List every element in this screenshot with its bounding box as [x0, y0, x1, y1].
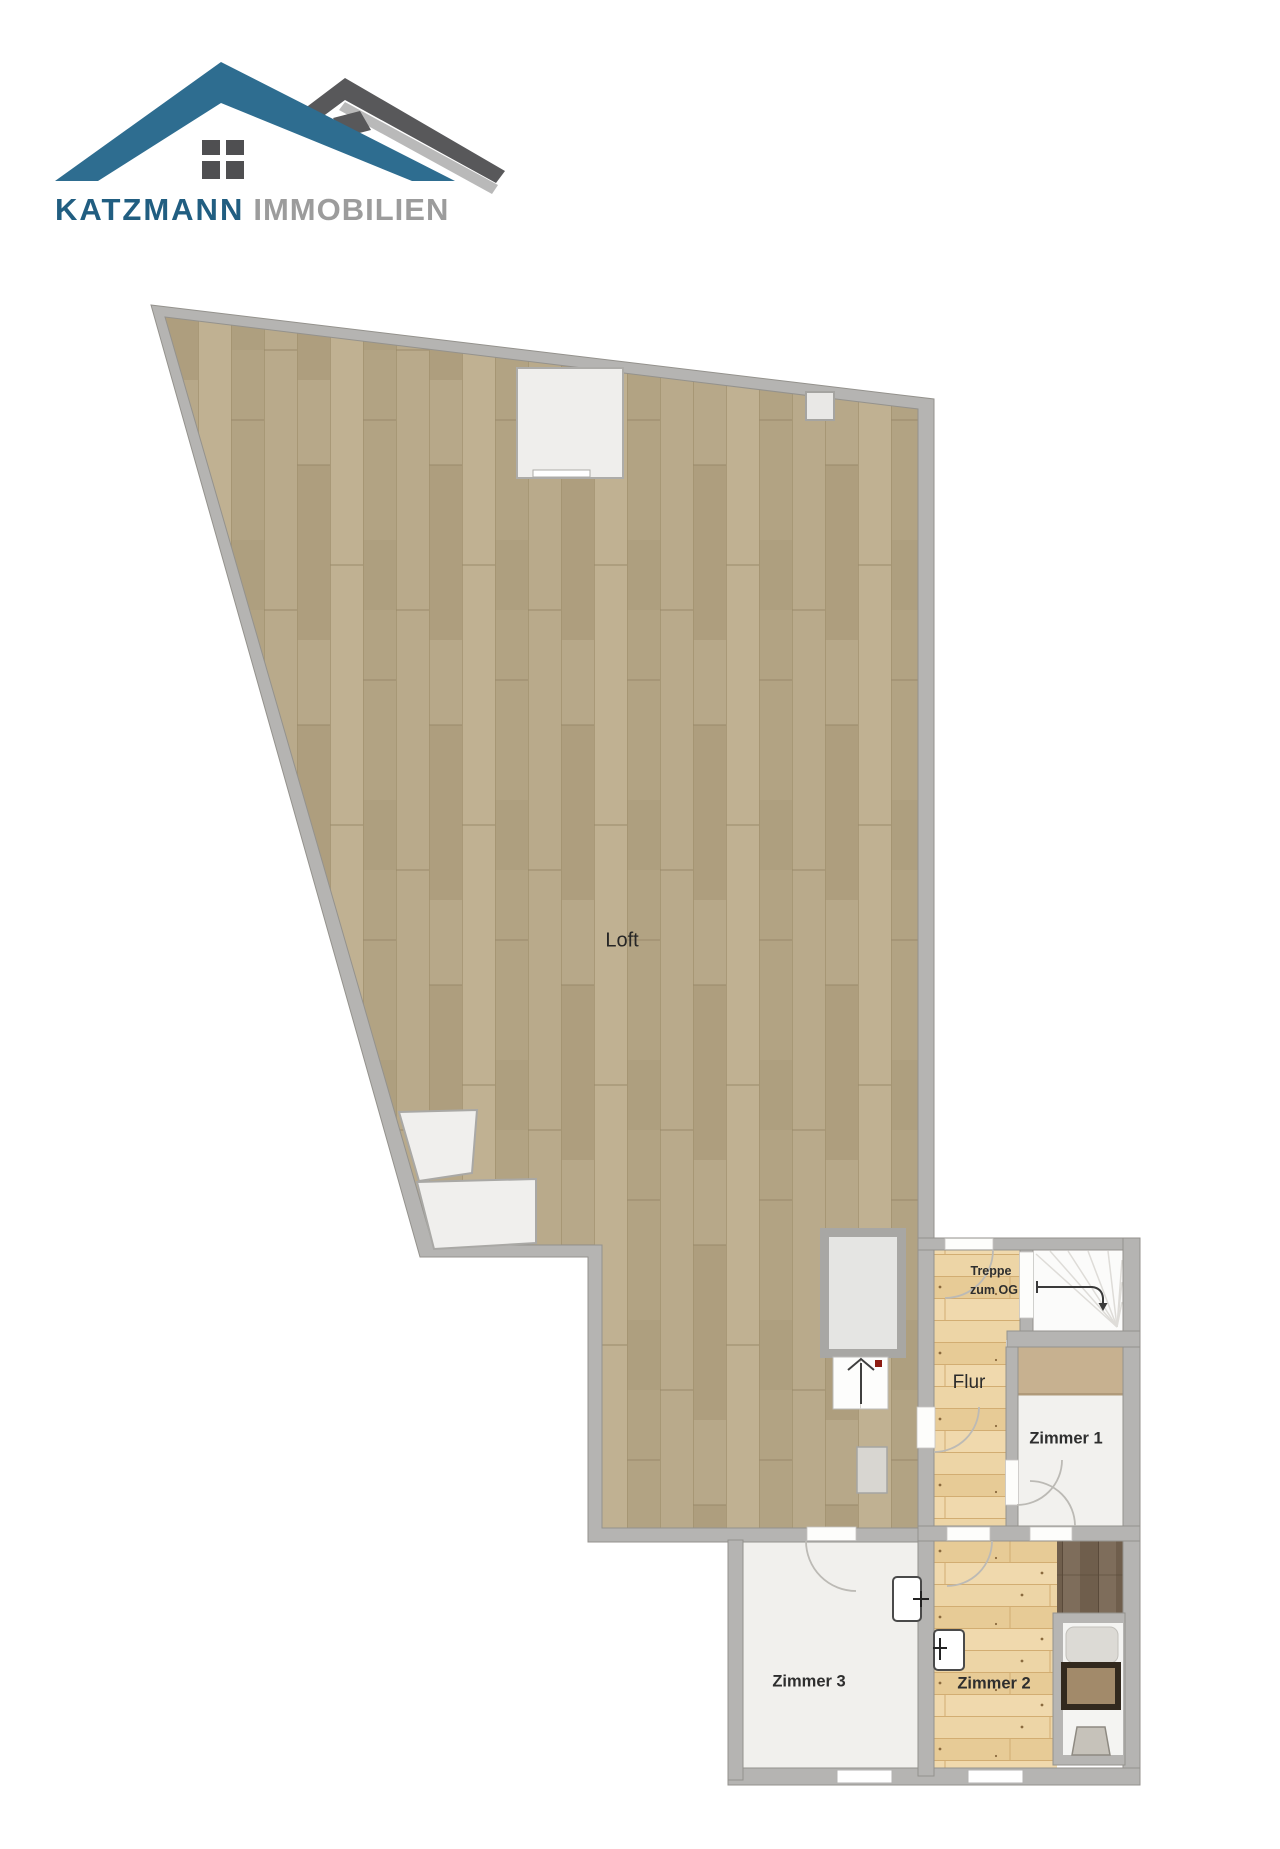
stairwell: [1033, 1250, 1123, 1331]
zimmer1-carpet-band: [1018, 1347, 1123, 1395]
carpet-edge: [1018, 1393, 1123, 1396]
appliance-box: [1064, 1665, 1118, 1707]
dark-brown-floor: [1057, 1541, 1123, 1617]
room-label-treppe-line1: Treppe: [971, 1264, 1012, 1278]
zimmer3-floor: [743, 1540, 918, 1768]
bath-niche: [1053, 1613, 1125, 1765]
chimney-notch: [806, 392, 834, 420]
dormer-window-icon: [533, 470, 590, 477]
loft-column: [857, 1447, 887, 1493]
red-marker-dot: [875, 1360, 882, 1367]
room-label-zimmer1: Zimmer 1: [1029, 1430, 1102, 1449]
room-label-treppe-line2: zum OG: [970, 1283, 1018, 1297]
floorplan-drawing: [0, 0, 1280, 1849]
room-label-loft: Loft: [605, 930, 638, 953]
flur-lower-floor: [934, 1335, 1006, 1527]
lounger-head: [1066, 1627, 1118, 1663]
loft-floor: [165, 317, 918, 1528]
sink-fixture-zimmer2: [933, 1630, 964, 1670]
room-label-zimmer2: Zimmer 2: [957, 1675, 1030, 1694]
room-label-flur: Flur: [953, 1372, 986, 1394]
floorplan-page: KATZMANNIMMOBILIEN: [0, 0, 1280, 1849]
stool-shape: [1072, 1727, 1110, 1755]
room-label-zimmer3: Zimmer 3: [772, 1673, 845, 1692]
